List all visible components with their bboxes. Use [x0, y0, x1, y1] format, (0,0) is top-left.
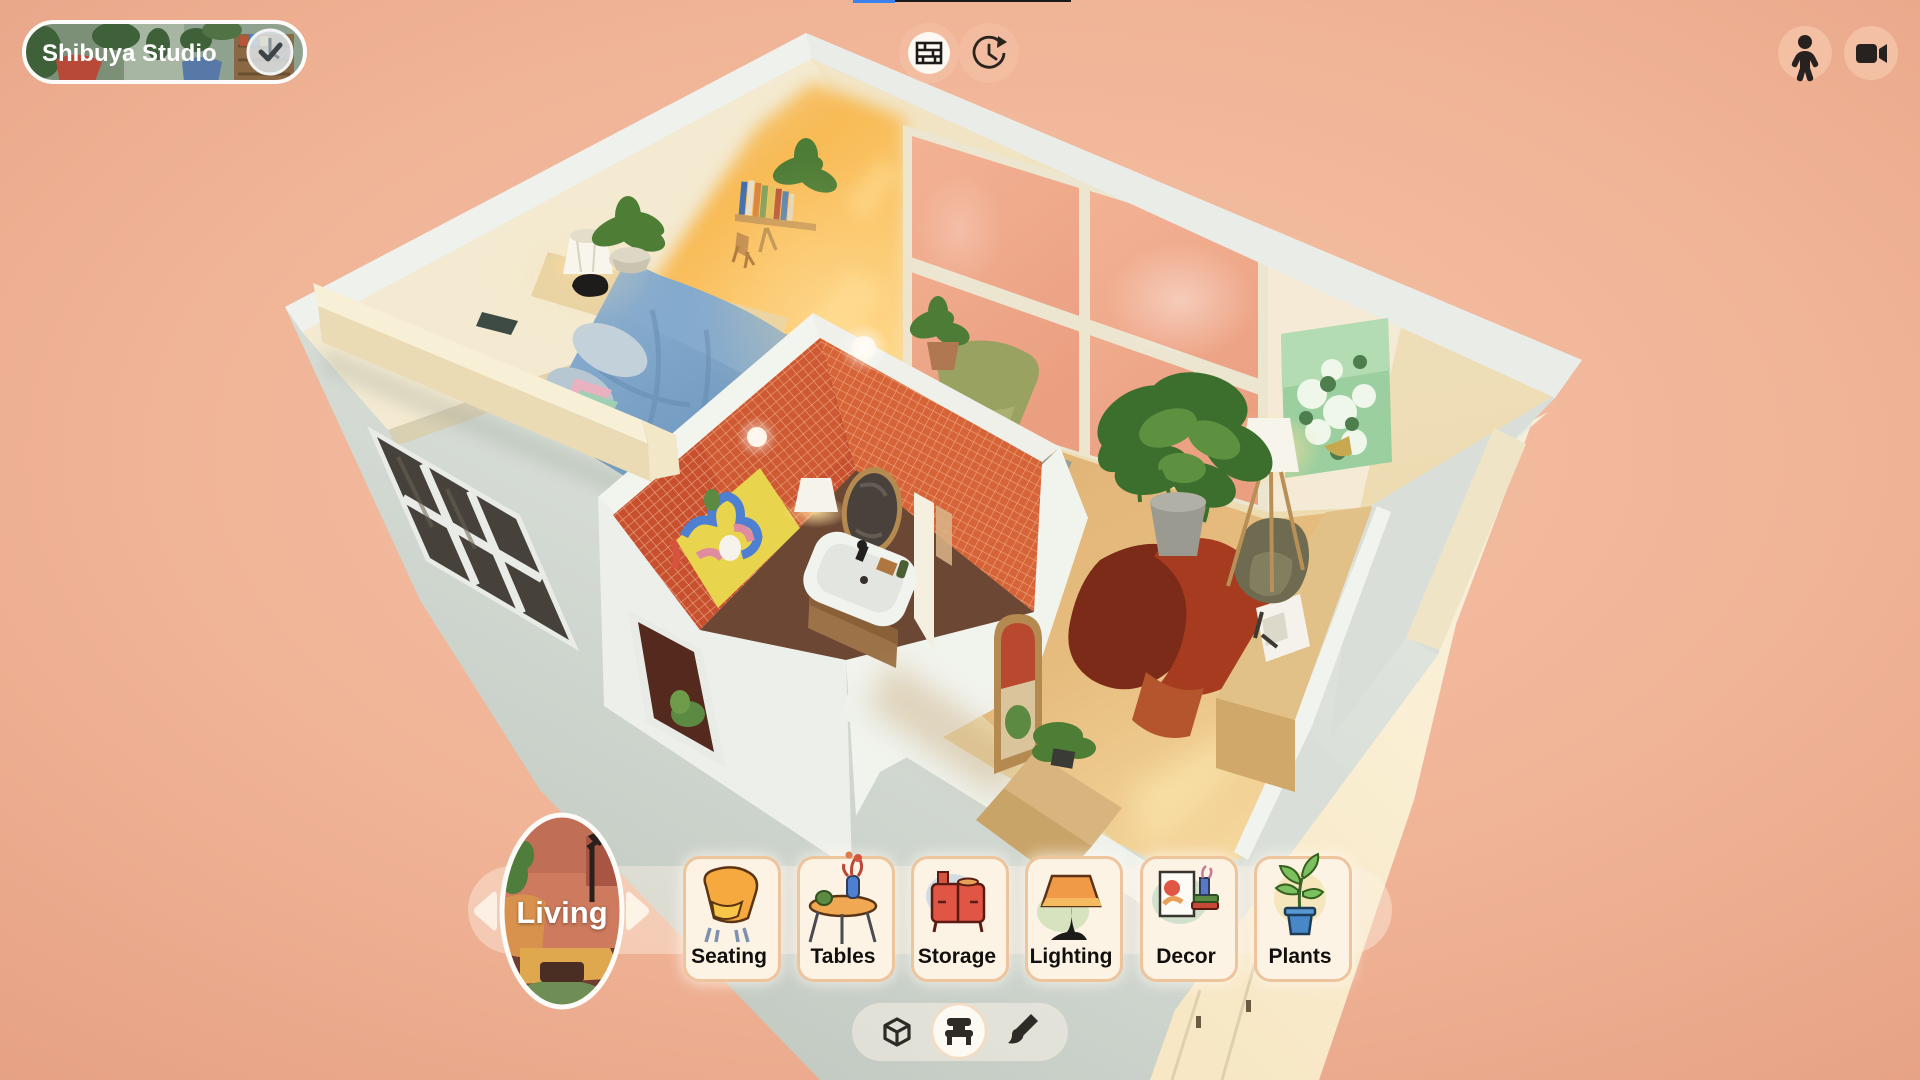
svg-text:Decor: Decor — [1156, 945, 1216, 968]
svg-text:Seating: Seating — [691, 945, 767, 968]
svg-text:Lighting: Lighting — [1030, 945, 1113, 968]
svg-text:Storage: Storage — [918, 945, 996, 968]
svg-text:Tables: Tables — [811, 945, 876, 968]
svg-text:Plants: Plants — [1268, 945, 1331, 968]
